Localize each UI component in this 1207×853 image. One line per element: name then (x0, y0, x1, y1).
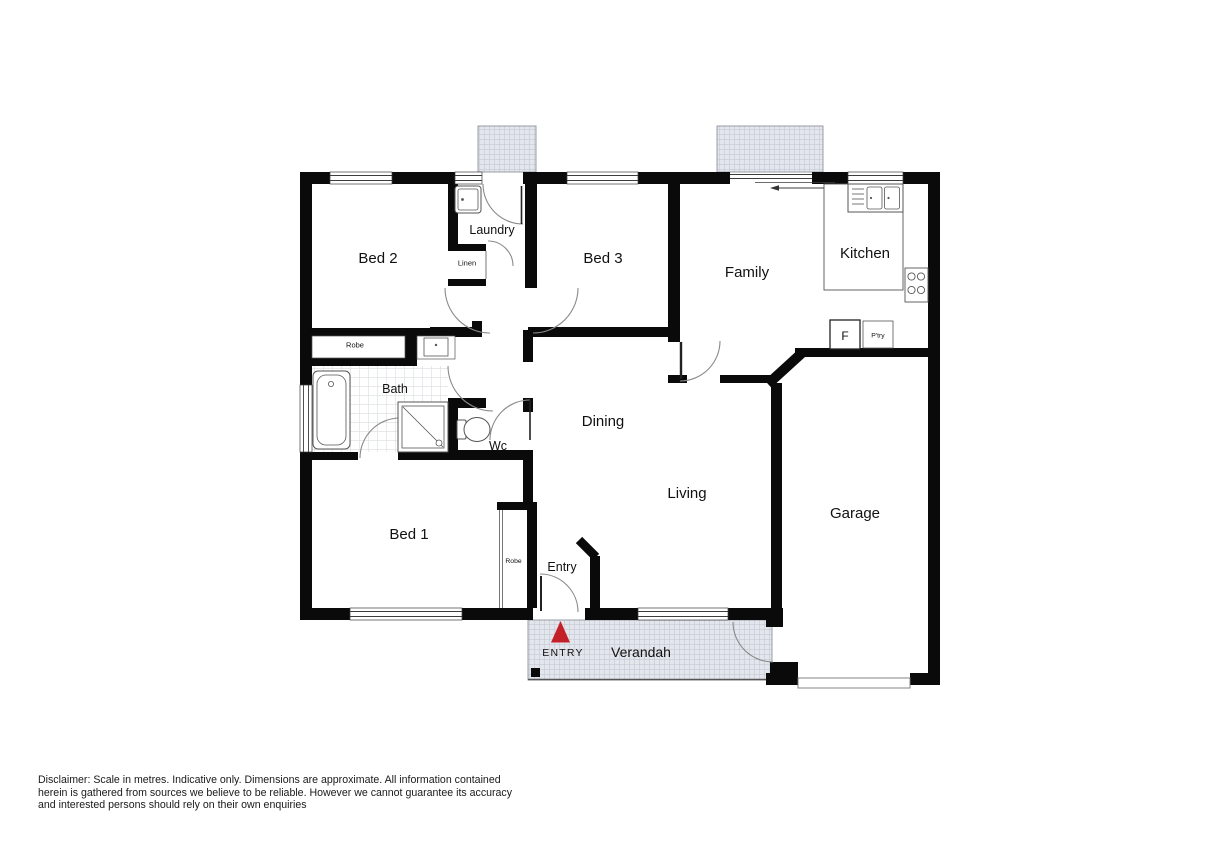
shower (398, 402, 448, 452)
cooktop (905, 268, 928, 302)
label-bed3: Bed 3 (583, 250, 622, 267)
label-verandah: Verandah (611, 644, 671, 660)
label-entry-marker: ENTRY (542, 647, 583, 659)
floorplan-page: Bed 2 Laundry Linen Bed 3 Family Kitchen… (0, 0, 1207, 853)
label-bed1: Bed 1 (389, 526, 428, 543)
garage-door (798, 678, 910, 688)
laundry-tub (455, 186, 481, 213)
window-bed3-top (567, 172, 638, 184)
label-kitchen: Kitchen (840, 245, 890, 262)
label-pantry: P'try (871, 333, 885, 340)
disclaimer-line-3: and interested persons should rely on th… (38, 799, 512, 812)
disclaimer: Disclaimer: Scale in metres. Indicative … (38, 774, 512, 812)
entry-angled-wall (579, 540, 596, 557)
verandah-post (531, 668, 540, 677)
window-bed2-top (330, 172, 392, 184)
label-robe-bed2: Robe (346, 341, 364, 350)
label-fridge: F (841, 329, 848, 343)
porch-back-door (478, 126, 536, 172)
window-kitchen-top (848, 172, 903, 184)
bed3-door-arc (533, 288, 578, 333)
kitchen-sink (848, 184, 903, 212)
label-bath: Bath (382, 382, 408, 396)
label-laundry: Laundry (469, 223, 515, 237)
label-bed2: Bed 2 (358, 250, 397, 267)
disclaimer-line-1: Disclaimer: Scale in metres. Indicative … (38, 774, 512, 787)
back-door-arc (483, 184, 523, 224)
label-wc: Wc (489, 439, 507, 453)
label-entry: Entry (547, 560, 577, 574)
disclaimer-line-2: herein is gathered from sources we belie… (38, 787, 512, 800)
window-bath-left (300, 385, 312, 452)
label-linen: Linen (458, 259, 476, 268)
window-laundry-top (455, 172, 482, 184)
garage-angled-wall (768, 352, 803, 384)
window-living-bottom (638, 608, 728, 620)
robe-bed1-front (500, 510, 503, 608)
label-dining: Dining (582, 413, 625, 430)
label-family: Family (725, 264, 770, 281)
window-bed1-bottom (350, 608, 462, 620)
laundry-door-arc (488, 241, 513, 266)
bathtub (313, 371, 350, 449)
label-garage: Garage (830, 505, 880, 522)
porch-family (717, 126, 823, 172)
front-door-arc (540, 574, 578, 612)
toilet (457, 418, 490, 442)
bath-vanity (417, 336, 455, 359)
label-robe-bed1: Robe (505, 558, 521, 565)
sliding-door-arrow-icon (770, 185, 779, 190)
label-living: Living (667, 485, 706, 502)
floorplan-svg: Bed 2 Laundry Linen Bed 3 Family Kitchen… (0, 0, 1207, 853)
bed2-door-arc (445, 288, 490, 333)
